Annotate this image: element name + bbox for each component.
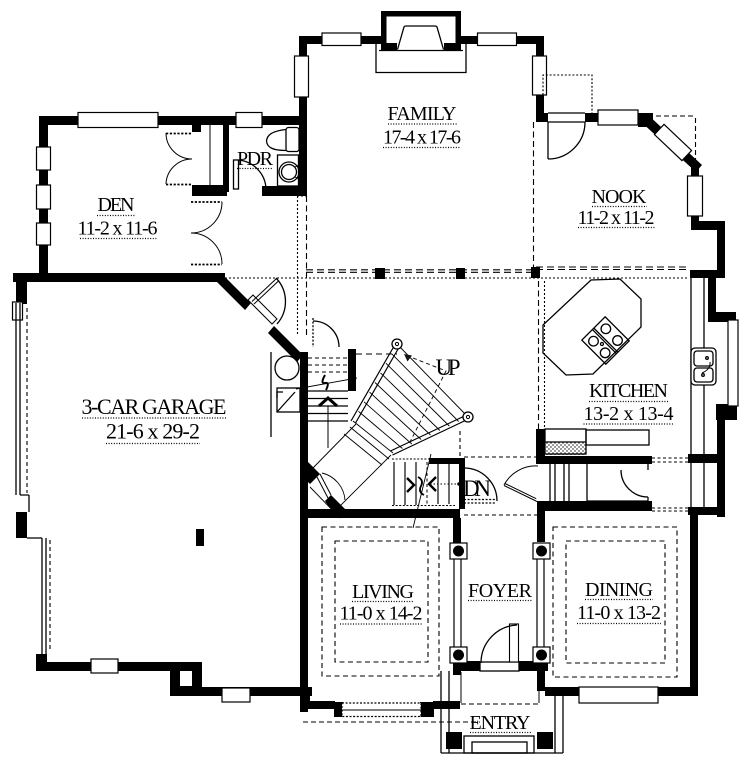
svg-text:UP: UP [436,355,461,380]
svg-text:11-0 x 14-2: 11-0 x 14-2 [340,603,423,625]
svg-text:11-2 x 11-2: 11-2 x 11-2 [578,207,655,229]
svg-text:13-2 x 13-4: 13-2 x 13-4 [584,403,674,425]
svg-text:PDR: PDR [237,148,274,170]
svg-text:ENTRY: ENTRY [470,712,531,734]
svg-text:NOOK: NOOK [592,186,648,208]
svg-text:21-6 x 29-2: 21-6 x 29-2 [106,419,200,444]
svg-text:DN: DN [463,476,491,501]
svg-text:DINING: DINING [585,579,653,601]
svg-text:FAMILY: FAMILY [388,103,457,125]
svg-text:11-2 x 11-6: 11-2 x 11-6 [78,218,158,240]
svg-text:3-CAR GARAGE: 3-CAR GARAGE [82,394,227,419]
svg-text:FOYER: FOYER [468,580,533,602]
svg-text:11-0 x 13-2: 11-0 x 13-2 [577,602,661,624]
svg-text:KITCHEN: KITCHEN [589,380,668,402]
svg-text:17-4 x 17-6: 17-4 x 17-6 [383,127,461,149]
svg-text:LIVING: LIVING [352,581,414,603]
svg-text:DEN: DEN [98,194,135,216]
